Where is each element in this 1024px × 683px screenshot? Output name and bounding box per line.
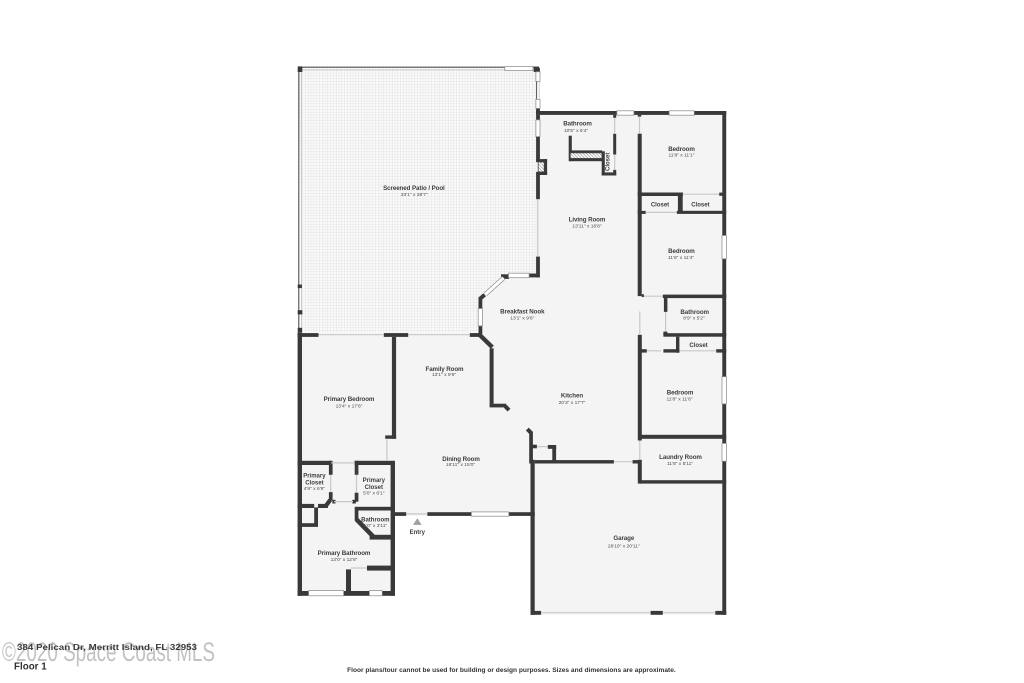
svg-text:13'1" x 9'6": 13'1" x 9'6" [432, 372, 456, 378]
svg-text:33'1" x 38'7": 33'1" x 38'7" [401, 192, 428, 198]
svg-text:Bedroom: Bedroom [668, 248, 695, 255]
svg-text:Kitchen: Kitchen [561, 393, 583, 400]
svg-text:13'4" x 17'6": 13'4" x 17'6" [336, 403, 363, 409]
svg-text:10'5" x 6'4": 10'5" x 6'4" [564, 128, 588, 134]
svg-text:Closet: Closet [689, 343, 707, 349]
svg-text:13'1" x 9'6": 13'1" x 9'6" [510, 316, 534, 322]
svg-text:Bedroom: Bedroom [667, 389, 694, 396]
svg-text:Bathroom: Bathroom [680, 309, 709, 316]
svg-text:Laundry Room: Laundry Room [659, 454, 702, 461]
svg-text:Closet: Closet [305, 480, 323, 486]
svg-text:Primary Bedroom: Primary Bedroom [324, 396, 375, 403]
svg-text:11'8" x 11'4": 11'8" x 11'4" [668, 255, 694, 261]
svg-text:Closet: Closet [691, 202, 709, 208]
svg-text:5'0" x 3'11": 5'0" x 3'11" [363, 523, 387, 529]
svg-text:Closet: Closet [651, 203, 669, 209]
svg-text:5'0" x 6'1": 5'0" x 6'1" [363, 491, 385, 497]
svg-text:Floor plans/tour cannot be use: Floor plans/tour cannot be used for buil… [347, 667, 676, 674]
svg-text:11'8" x 5'11": 11'8" x 5'11" [667, 461, 693, 467]
svg-text:384 Pelican Dr, Merritt Island: 384 Pelican Dr, Merritt Island, FL 32953 [17, 643, 198, 652]
svg-text:20'3" x 17'7": 20'3" x 17'7" [559, 400, 586, 406]
svg-text:Screened Patio / Pool: Screened Patio / Pool [383, 185, 445, 192]
svg-text:Bedroom: Bedroom [668, 146, 695, 153]
svg-text:Bathroom: Bathroom [563, 121, 592, 128]
svg-text:4'9" x 6'9": 4'9" x 6'9" [304, 486, 326, 492]
svg-text:Primary: Primary [303, 473, 326, 479]
svg-text:Primary: Primary [363, 478, 386, 484]
svg-text:Living Room: Living Room [569, 217, 606, 224]
svg-text:13'11" x 16'8": 13'11" x 16'8" [572, 224, 601, 230]
svg-text:Family Room: Family Room [426, 366, 465, 373]
svg-text:Primary Bathroom: Primary Bathroom [318, 550, 371, 557]
svg-text:Breakfast Nook: Breakfast Nook [500, 309, 545, 316]
svg-text:Entry: Entry [410, 530, 426, 536]
svg-text:8'9" x 5'2": 8'9" x 5'2" [683, 316, 705, 322]
svg-text:Bathroom: Bathroom [361, 517, 389, 523]
svg-text:18'11" x 15'0": 18'11" x 15'0" [446, 462, 475, 468]
svg-text:Closet: Closet [605, 153, 611, 171]
svg-text:Floor 1: Floor 1 [14, 662, 47, 673]
svg-text:Garage: Garage [613, 535, 634, 542]
svg-text:13'0" x 12'8": 13'0" x 12'8" [331, 557, 358, 563]
svg-text:Closet: Closet [365, 485, 383, 491]
svg-text:11'8" x 11'1": 11'8" x 11'1" [668, 153, 694, 159]
svg-text:26'10" x 20'11": 26'10" x 20'11" [608, 543, 640, 549]
svg-text:11'8" x 11'6": 11'8" x 11'6" [666, 396, 692, 402]
